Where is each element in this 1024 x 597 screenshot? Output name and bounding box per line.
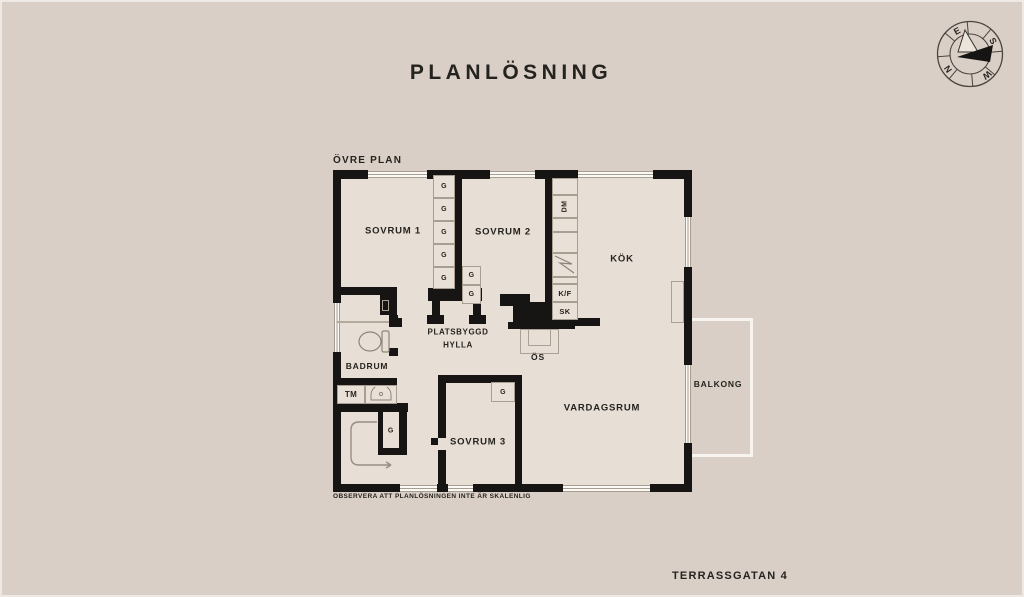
room-label-sovrum1: SOVRUM 1 (365, 226, 421, 237)
kitchen-counter (552, 178, 578, 195)
wall-segment (389, 315, 398, 327)
shower-divider (337, 321, 389, 323)
room-label-sovrum2: SOVRUM 2 (475, 227, 531, 238)
wardrobe-cabinet: G (433, 244, 455, 267)
stove (552, 253, 578, 277)
built-in-shelf-label: PLATSBYGGD (428, 328, 489, 337)
wall-segment (337, 378, 397, 385)
wardrobe-cabinet: G (433, 175, 455, 198)
page-title: PLANLÖSNING (410, 61, 612, 85)
wall-segment (684, 267, 692, 365)
washing-machine: TM (337, 385, 365, 404)
sink-icon (368, 387, 394, 403)
window (563, 485, 650, 492)
stairs-arrow-icon (344, 412, 400, 474)
kitchen-furniture (671, 281, 684, 323)
cabinet-label: SK (559, 307, 570, 316)
washing-machine-label: TM (345, 390, 357, 399)
window (578, 171, 653, 178)
stove-icon (553, 254, 577, 276)
laundry-sink (365, 385, 397, 404)
room-label-badrum: BADRUM (346, 361, 389, 371)
wardrobe-cabinet: G (433, 221, 455, 244)
wardrobe-cabinet: G (491, 382, 515, 402)
kitchen-counter (552, 277, 578, 284)
window (448, 485, 473, 492)
dishwasher-label: DM (562, 201, 569, 213)
fridge-freezer: K/F (552, 284, 578, 302)
wall-segment (650, 484, 692, 492)
compass-letter-n: N (942, 63, 954, 74)
fireplace-hearth (528, 329, 551, 346)
plan-level-label: ÖVRE PLAN (333, 155, 402, 166)
wall-segment (431, 438, 438, 445)
wall-segment (473, 484, 563, 492)
room-label-balkong: BALKONG (694, 379, 743, 389)
compass-letter-s: S (987, 36, 999, 46)
window (334, 303, 340, 352)
built-in-shelf-label: HYLLA (443, 341, 473, 350)
window (490, 171, 535, 178)
scale-note: OBSERVERA ATT PLANLÖSNINGEN INTE ÄR SKAL… (333, 493, 531, 500)
wardrobe-cabinet: G (462, 266, 481, 285)
wall-segment (333, 403, 408, 412)
fireplace-label: ÖS (531, 352, 545, 362)
dishwasher: DM (552, 195, 578, 218)
kitchen-counter (552, 218, 578, 232)
wardrobe-cabinet: G (433, 267, 455, 289)
built-in-shelf (427, 315, 444, 324)
fireplace-mass (508, 322, 575, 329)
wall-segment (684, 170, 692, 217)
wall-segment (333, 170, 341, 303)
wall-segment (455, 174, 462, 290)
compass-rose-icon: E S N W (927, 16, 1009, 98)
wardrobe-cabinet: G (462, 285, 481, 304)
room-label-sovrum3: SOVRUM 3 (450, 437, 506, 448)
address-label: TERRASSGATAN 4 (672, 570, 788, 582)
compass-letter-e: E (952, 25, 962, 37)
wall-segment (437, 484, 448, 492)
built-in-shelf (469, 315, 486, 324)
wall-segment (333, 484, 400, 492)
fridge-freezer-label: K/F (558, 289, 571, 298)
room-label-vardagsrum: VARDAGSRUM (564, 403, 640, 414)
window (400, 485, 437, 492)
room-label-kok: KÖK (610, 254, 634, 265)
wall-segment (333, 352, 341, 492)
cabinet: SK (552, 302, 578, 320)
toilet-icon (356, 329, 392, 355)
wall-segment (333, 287, 383, 295)
wall-segment (398, 318, 402, 327)
fireplace-mass (513, 302, 547, 323)
window (685, 217, 691, 267)
floorplan-page: PLANLÖSNING E S N W ÖVRE PLAN OBSERVERA … (0, 0, 1024, 597)
shower-control (382, 300, 389, 311)
wall-segment (515, 375, 522, 484)
wall-segment (438, 450, 446, 484)
wardrobe-cabinet: G (433, 198, 455, 221)
balcony-door (685, 365, 691, 443)
kitchen-counter (552, 232, 578, 253)
window (368, 171, 427, 178)
wall-segment (438, 375, 446, 438)
